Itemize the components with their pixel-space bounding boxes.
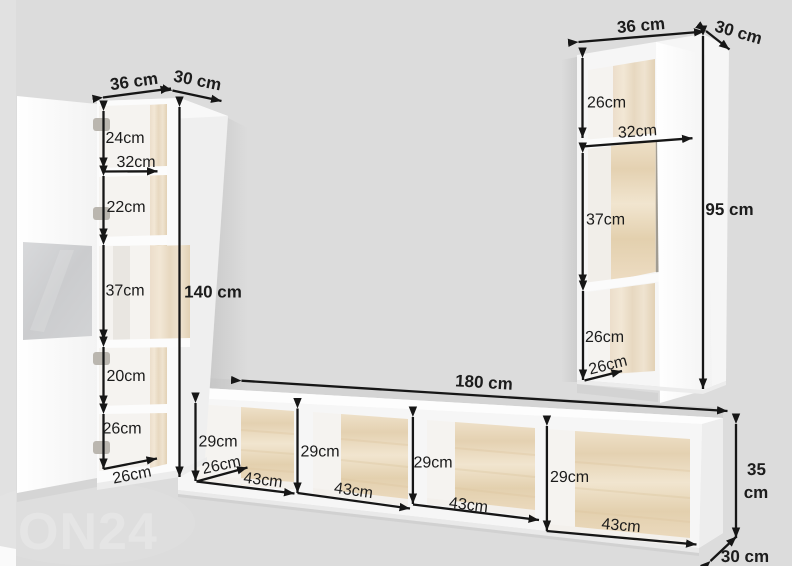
svg-text:29cm: 29cm xyxy=(413,455,452,472)
svg-text:26cm: 26cm xyxy=(585,329,624,346)
svg-text:32cm: 32cm xyxy=(116,154,155,171)
svg-text:95 cm: 95 cm xyxy=(705,200,753,219)
svg-text:43cm: 43cm xyxy=(601,516,641,536)
svg-text:26cm: 26cm xyxy=(587,95,626,112)
svg-text:20cm: 20cm xyxy=(106,368,145,385)
svg-text:30 cm: 30 cm xyxy=(721,547,769,566)
svg-text:29cm: 29cm xyxy=(550,469,589,486)
svg-text:ON24: ON24 xyxy=(18,503,158,561)
svg-text:32cm: 32cm xyxy=(617,122,657,142)
svg-text:29cm: 29cm xyxy=(300,444,339,461)
svg-text:37cm: 37cm xyxy=(105,283,144,300)
svg-text:37cm: 37cm xyxy=(586,212,625,229)
svg-text:140 cm: 140 cm xyxy=(184,283,242,302)
svg-text:22cm: 22cm xyxy=(106,199,145,216)
svg-text:26cm: 26cm xyxy=(102,421,141,438)
svg-text:24cm: 24cm xyxy=(105,130,144,147)
svg-text:cm: cm xyxy=(744,483,769,502)
svg-text:180 cm: 180 cm xyxy=(455,371,514,393)
svg-text:29cm: 29cm xyxy=(198,434,237,451)
svg-text:35: 35 xyxy=(747,460,766,479)
